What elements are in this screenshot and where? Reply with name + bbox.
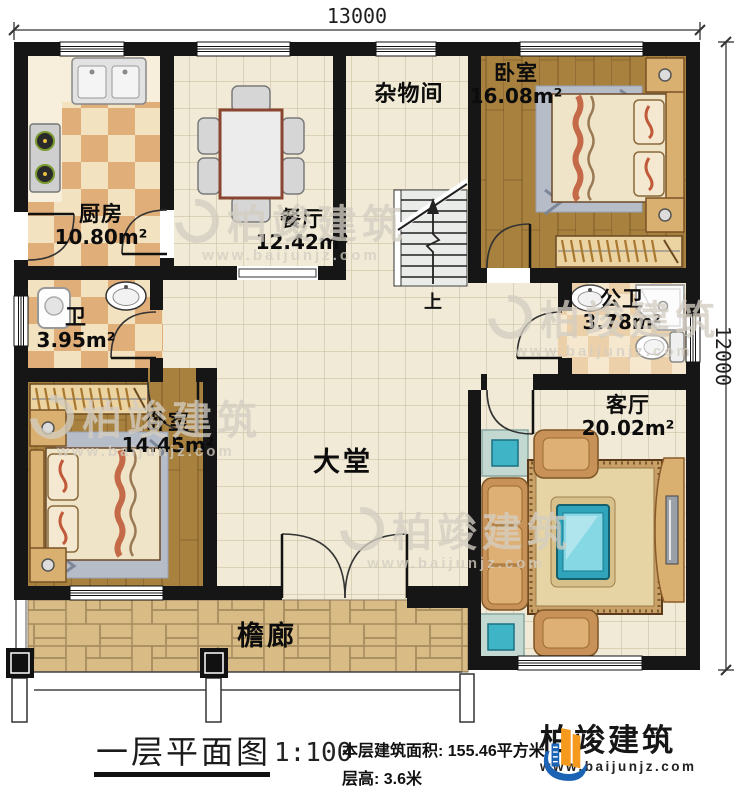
floor-area-text: 本层建筑面积: 155.46平方米 [342,737,545,761]
room-label-bath: 卫 3.95m² [37,306,116,351]
window [60,42,124,56]
stairs-up-label: 上 [424,288,442,314]
window [686,316,700,362]
coffee-table [557,505,609,579]
cased-opening [237,266,318,280]
dimension-height-label: 12000 [711,326,735,386]
floor-height-text: 层高: 3.6米 [342,765,422,789]
porch-column [6,648,34,678]
room-label-living: 客厅 20.02m² [582,394,675,439]
window [14,296,28,346]
sheet-scale: 1:100 [274,738,352,768]
window [518,656,642,670]
window [70,586,163,600]
company-logo-icon [540,724,588,784]
room-label-porch: 檐廊 [237,622,297,652]
tv-console [655,458,684,602]
porch-column [200,648,228,678]
title-underline [94,772,270,777]
window [197,42,290,56]
company-logo: 柏竣建筑 www.baijunjz.com [540,724,697,774]
room-label-hall: 大堂 [313,448,373,478]
room-label-bedroom1: 卧室 16.08m² [470,62,563,107]
window [376,42,436,56]
room-label-public-bath: 公卫 3.78m² [583,288,662,333]
room-label-bedroom2: 卧室 14.45m² [122,411,215,456]
porch-structure [6,600,474,722]
window [520,42,643,56]
room-label-dining: 餐厅 12.42m² [256,208,349,253]
floor-plan-page: 柏竣建筑 www.baijunjz.com 柏竣建筑 www.baijunjz.… [0,0,750,798]
room-label-kitchen: 厨房 10.80m² [55,203,148,248]
room-label-storage: 杂物间 [374,82,443,106]
wardrobe [556,236,682,267]
sheet-title: 一层平面图 [96,727,271,773]
dimension-width-label: 13000 [327,4,387,28]
stairs [394,178,467,286]
